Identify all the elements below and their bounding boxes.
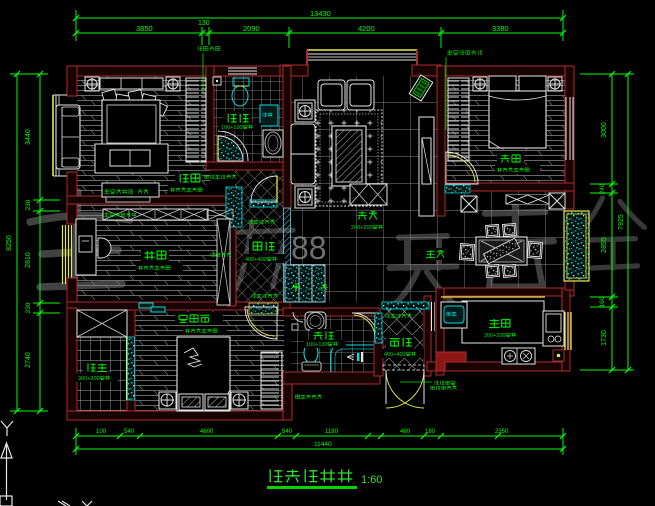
svg-text:7925: 7925 [618, 214, 625, 230]
svg-text:8250: 8250 [6, 235, 13, 251]
svg-text:200+200: 200+200 [484, 333, 506, 339]
svg-text:100+100: 100+100 [221, 125, 243, 131]
svg-text:1730: 1730 [601, 330, 608, 346]
svg-text:3380: 3380 [492, 24, 509, 33]
svg-text:2090: 2090 [243, 24, 260, 33]
svg-text:3850: 3850 [136, 24, 153, 33]
svg-text:1:60: 1:60 [361, 474, 382, 486]
svg-text:400+400: 400+400 [384, 352, 406, 358]
svg-text:160: 160 [599, 296, 606, 307]
svg-text:100+100: 100+100 [306, 342, 328, 348]
svg-text:100: 100 [96, 429, 107, 435]
svg-text:2855: 2855 [601, 237, 608, 253]
svg-text:540: 540 [124, 429, 135, 435]
svg-text:400+400: 400+400 [245, 257, 267, 263]
svg-text:2350: 2350 [495, 429, 509, 435]
svg-text:1180: 1180 [325, 429, 339, 435]
svg-text:180: 180 [425, 429, 436, 435]
svg-text:4200: 4200 [358, 24, 375, 33]
svg-text:13430: 13430 [310, 9, 331, 18]
svg-text:11440: 11440 [314, 441, 332, 448]
svg-text:130: 130 [198, 20, 210, 27]
svg-text:3000: 3000 [601, 122, 608, 138]
svg-text:200+200: 200+200 [351, 225, 373, 231]
svg-text:4600: 4600 [200, 429, 214, 435]
svg-text:2740: 2740 [25, 352, 32, 368]
svg-text:460: 460 [400, 429, 411, 435]
svg-text:230: 230 [25, 302, 32, 313]
svg-text:230: 230 [25, 199, 32, 210]
svg-text:3440: 3440 [25, 129, 32, 145]
svg-text:540: 540 [282, 429, 293, 435]
svg-text:240: 240 [599, 183, 606, 194]
svg-text:300+300: 300+300 [78, 376, 100, 382]
svg-text:2810: 2810 [25, 252, 32, 268]
